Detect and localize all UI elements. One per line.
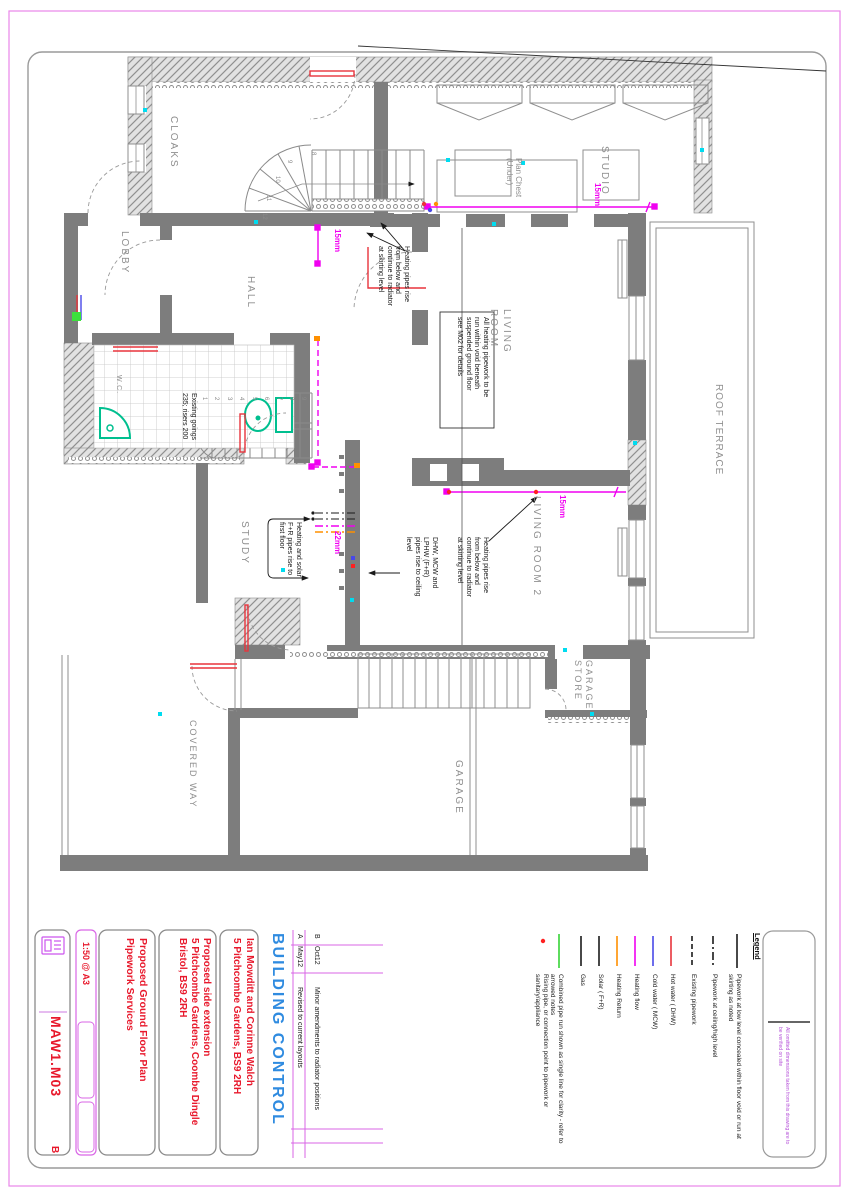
annotation-heating-rise-1: Heating pipes rise from below and contin… — [376, 246, 410, 341]
label-plan-chest: Plan Chest (Under) — [505, 158, 523, 218]
revision-date: May12 — [294, 946, 304, 987]
drawing-stamp-icon — [42, 937, 64, 954]
stair-number: 3 — [226, 397, 232, 405]
revision-rev: B — [311, 934, 321, 946]
legend-item-label: Hot water ( DHW) — [669, 974, 677, 1124]
revision-row: AMay12Revised to current layouts — [294, 934, 304, 1154]
legend-item-label: Heating flow — [633, 974, 641, 1124]
annotation-dhw-note: DHW, MCW and LPHW (F+R) pipes rise to ce… — [404, 537, 438, 622]
room-label-covered-way: COVERED WAY — [188, 720, 198, 830]
room-label-lobby: LOBBY — [119, 231, 130, 301]
stair-number: 2 — [213, 397, 219, 405]
room-label-wc: W.C. — [115, 375, 122, 415]
stair-number: 4 — [238, 397, 244, 405]
legend-item-label: Combined pipe run shown as single line f… — [549, 974, 564, 1164]
legend-item-label: Existing pipework — [690, 974, 698, 1124]
stair-number: 10 — [274, 176, 280, 186]
room-label-living-room: LIVING ROOM — [487, 309, 513, 379]
room-label-garage-store: GARAGE STORE — [572, 660, 594, 720]
legend-item-label: Pipework at low level concealed within f… — [727, 974, 742, 1164]
stair-number: 11 — [265, 195, 271, 205]
annotation-void-note: All heating pipework to be run within vo… — [455, 317, 489, 425]
stair-number: 6 — [263, 397, 269, 405]
room-label-study: STUDY — [239, 521, 250, 581]
title-block-frames — [35, 930, 815, 1158]
legend-heading: Legend — [753, 933, 762, 973]
client-name: Ian Mowditt and Corinne Walch 5 Pitchcom… — [230, 938, 255, 1150]
drawing-number: MAW1.M03 — [48, 1016, 64, 1091]
stair-number: 7 — [276, 397, 282, 405]
legend-item-label: Solar ( F+R) — [597, 974, 605, 1124]
disclaimer-note: All omitted dimensions taken from this d… — [777, 1027, 790, 1155]
stair-number: 5 — [251, 397, 257, 405]
building-control-stamp: BUILDING CONTROL — [268, 933, 286, 1143]
room-label-garage: GARAGE — [453, 760, 464, 830]
scale-value: 1:50 @ A3 — [81, 942, 91, 997]
room-label-living-room-2: LIVING ROOM 2 — [531, 496, 542, 626]
stair-number: 12 — [261, 213, 267, 223]
room-label-cloaks: CLOAKS — [168, 116, 179, 206]
room-label-hall: HALL — [245, 276, 256, 336]
revision-rev: A — [294, 934, 304, 946]
annotation-stair-note: Existing goings 235; risers 200 — [180, 393, 197, 463]
drawing-sheet: CLOAKS LOBBY HALL W.C. LIVING ROOM LIVIN… — [0, 0, 849, 1200]
revision-note: Revised to current layouts — [296, 987, 303, 1068]
legend-item-label: Gas — [579, 974, 587, 1124]
legend-item-label: Cold water ( MCW) — [651, 974, 659, 1124]
stair-number: 9 — [286, 160, 292, 170]
stair-number: 8 — [288, 397, 294, 405]
pipe-label-15mm-studio: 15mm — [593, 183, 602, 213]
pipe-label-15mm-living2: 15mm — [558, 495, 567, 525]
pipe-label-22mm: 22mm — [333, 531, 342, 561]
pipe-label-15mm-hall: 15mm — [333, 229, 342, 259]
annotation-heating-rise-2: Heating pipes rise from below and contin… — [455, 537, 489, 629]
legend-item-label: Pipework at ceiling/high level — [711, 974, 719, 1124]
revision-date: Oct12 — [311, 946, 321, 987]
project-description: Proposed side extension 5 Pitchcombe Gar… — [176, 938, 212, 1153]
revision-letter: B — [49, 1146, 60, 1158]
revision-row: BOct12Minor amendments to radiator posit… — [311, 934, 321, 1154]
revision-note: Minor amendments to radiator positions — [313, 987, 320, 1110]
legend-item-label: Heating Return — [615, 974, 623, 1124]
stair-number: 1 — [201, 397, 207, 405]
annotation-solar-note: Heating and solar F+R pipes rise to firs… — [277, 522, 303, 610]
room-label-roof-terrace: ROOF TERRACE — [713, 384, 724, 504]
drawing-title: Proposed Ground Floor Plan Pipework Serv… — [123, 938, 149, 1153]
legend-samples — [541, 934, 737, 968]
stair-number: 9 — [300, 397, 306, 405]
legend-item-label: Rising pipe, or connection point to pipe… — [534, 974, 549, 1164]
revision-table: BOct12Minor amendments to radiator posit… — [287, 934, 328, 1154]
stair-number: 8 — [310, 152, 316, 160]
